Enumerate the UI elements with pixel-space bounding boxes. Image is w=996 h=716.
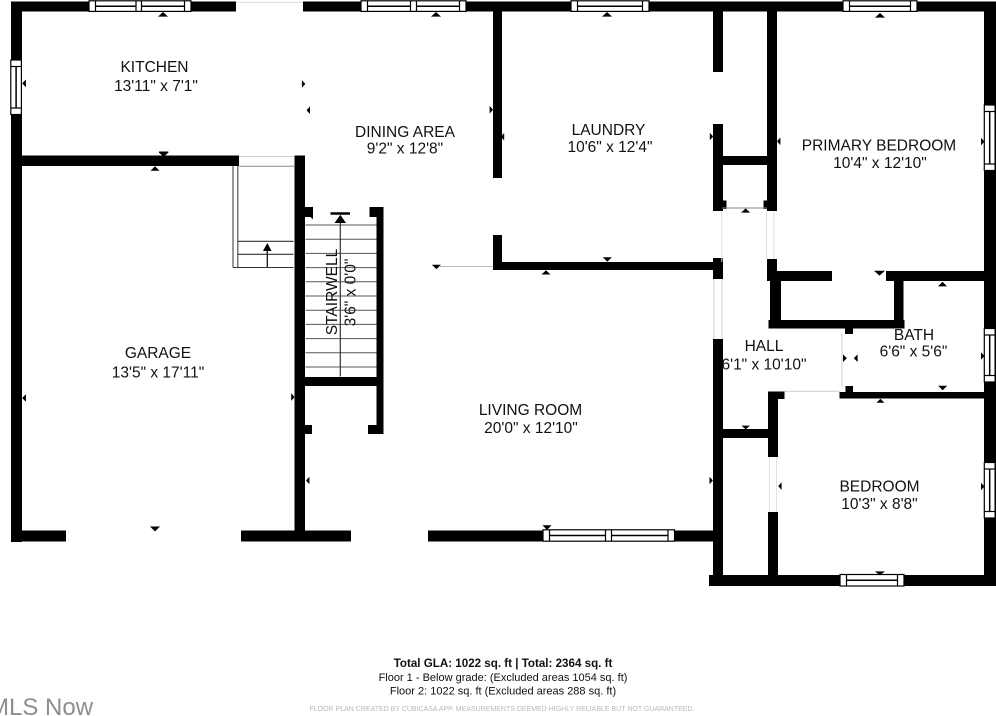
svg-text:9'2" x 12'8": 9'2" x 12'8": [367, 141, 443, 158]
svg-text:FLOOR PLAN CREATED BY CUBICASA: FLOOR PLAN CREATED BY CUBICASA APP. MEAS…: [310, 706, 695, 713]
svg-text:Total GLA: 1022 sq. ft | Total: Total GLA: 1022 sq. ft | Total: 2364 sq.…: [394, 657, 613, 670]
svg-text:LAUNDRY: LAUNDRY: [572, 122, 646, 139]
svg-text:GARAGE: GARAGE: [125, 345, 191, 362]
svg-text:KITCHEN: KITCHEN: [120, 59, 188, 76]
svg-text:6'6" x 5'6": 6'6" x 5'6": [880, 344, 948, 361]
svg-text:10'3" x 8'8": 10'3" x 8'8": [841, 496, 917, 513]
svg-text:10'4" x 12'10": 10'4" x 12'10": [833, 155, 927, 172]
svg-text:HALL: HALL: [745, 338, 784, 355]
svg-text:10'6" x 12'4": 10'6" x 12'4": [567, 139, 652, 156]
svg-text:13'5" x 17'11": 13'5" x 17'11": [112, 365, 204, 382]
svg-text:3'6" x 0'0": 3'6" x 0'0": [343, 259, 360, 327]
svg-text:Floor 2: 1022 sq. ft (Excluded: Floor 2: 1022 sq. ft (Excluded areas 288…: [390, 685, 616, 697]
svg-text:DINING AREA: DINING AREA: [355, 124, 456, 141]
svg-text:STAIRWELL: STAIRWELL: [324, 248, 341, 335]
svg-text:BEDROOM: BEDROOM: [839, 479, 919, 496]
svg-text:LIVING ROOM: LIVING ROOM: [479, 402, 582, 419]
svg-text:BATH: BATH: [894, 327, 934, 344]
svg-text:6'1" x 10'10": 6'1" x 10'10": [721, 357, 806, 374]
svg-text:Floor 1 - Below grade: (Exclud: Floor 1 - Below grade: (Excluded areas 1…: [379, 672, 628, 684]
svg-text:MLS Now: MLS Now: [0, 694, 94, 716]
svg-text:13'11" x 7'1": 13'11" x 7'1": [114, 78, 198, 95]
svg-text:PRIMARY BEDROOM: PRIMARY BEDROOM: [802, 138, 956, 155]
svg-text:20'0" x 12'10": 20'0" x 12'10": [484, 420, 578, 437]
